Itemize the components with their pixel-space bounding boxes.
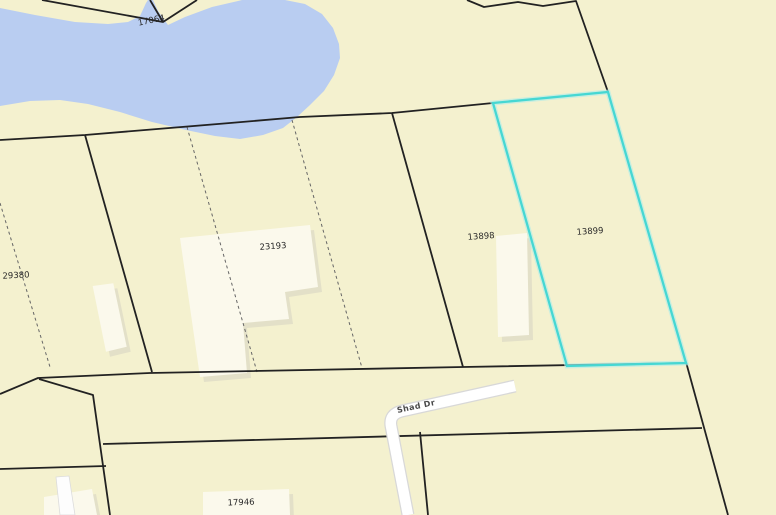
building-13898 [496, 233, 529, 337]
parcel-label-17946: 17946 [227, 498, 254, 509]
parcel-label-13899: 13899 [576, 226, 604, 238]
parcel-label-29380: 29380 [2, 270, 30, 281]
map-viewport[interactable]: 17064 29380 23193 13898 13899 17946 Shad… [0, 0, 776, 515]
parcel-label-23193: 23193 [259, 241, 287, 253]
parcel-label-13898: 13898 [467, 231, 495, 243]
